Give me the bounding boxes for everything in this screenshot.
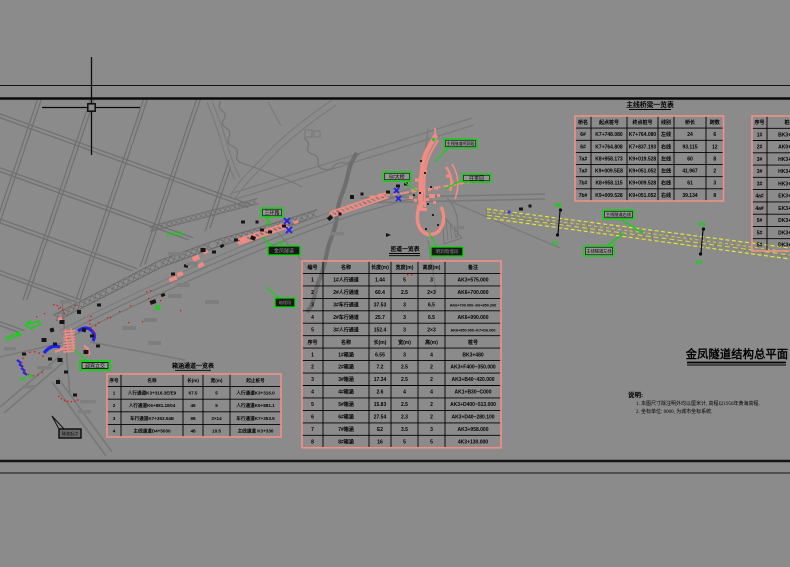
svg-text:说明:: 说明: (628, 390, 643, 399)
svg-text:起点桩号: 起点桩号 (598, 119, 619, 126)
svg-text:7: 7 (311, 427, 314, 433)
svg-text:3: 3 (113, 416, 116, 421)
svg-text:主线通道D4+5000: 主线通道D4+5000 (133, 427, 171, 434)
svg-text:HK3+205.: HK3+205. (778, 181, 790, 187)
svg-text:6#大桥: 6#大桥 (389, 173, 405, 180)
svg-text:K9+051.052: K9+051.052 (629, 193, 657, 199)
svg-text:2#车行通道: 2#车行通道 (333, 314, 359, 321)
svg-text:K9+019.528: K9+019.528 (629, 156, 657, 162)
svg-text:AK6+700.000: AK6+700.000 (458, 290, 489, 296)
svg-text:2.6: 2.6 (377, 390, 384, 396)
svg-text:AK6+990.000: AK6+990.000 (458, 315, 489, 321)
svg-text:5#箱涵: 5#箱涵 (338, 401, 354, 408)
svg-text:3#车行通道: 3#车行通道 (333, 302, 359, 309)
svg-text:名称: 名称 (341, 264, 351, 271)
svg-text:主线桥梁一览表: 主线桥梁一览表 (626, 100, 674, 109)
svg-text:4: 4 (403, 390, 406, 396)
svg-text:4: 4 (430, 390, 433, 396)
svg-text:7a#: 7a# (579, 169, 588, 175)
svg-text:6#箱涵: 6#箱涵 (338, 414, 354, 421)
svg-text:2. 坐标单位: 0000, 为城市坐标系统.: 2. 坐标单位: 0000, 为城市坐标系统. (636, 408, 712, 415)
svg-text:7b#: 7b# (579, 193, 588, 199)
svg-text:6.5: 6.5 (428, 303, 435, 309)
svg-text:2.5: 2.5 (401, 365, 408, 371)
svg-text:DK3+374.: DK3+374. (778, 243, 790, 249)
svg-text:箱涵通道一览表: 箱涵通道一览表 (172, 362, 215, 370)
svg-text:7a#: 7a# (579, 156, 588, 162)
svg-text:匝道一览表: 匝道一览表 (391, 245, 420, 253)
svg-text:3: 3 (713, 181, 716, 187)
svg-text:8#箱涵: 8#箱涵 (338, 438, 354, 445)
svg-text:1#人行通道: 1#人行通道 (333, 277, 359, 284)
svg-text:AK3+D40~280.100: AK3+D40~280.100 (451, 415, 494, 421)
svg-text:8: 8 (713, 156, 716, 162)
svg-text:6: 6 (311, 415, 314, 421)
svg-text:起止桩号: 起止桩号 (245, 377, 265, 384)
svg-text:3: 3 (430, 278, 433, 284)
svg-text:61: 61 (687, 181, 693, 187)
svg-text:左线: 左线 (660, 155, 671, 162)
svg-text:2: 2 (113, 403, 116, 408)
svg-text:车行通道K7+353.5: 车行通道K7+353.5 (236, 415, 275, 422)
svg-text:3: 3 (311, 377, 314, 383)
svg-text:备注: 备注 (467, 264, 478, 271)
svg-text:2: 2 (430, 402, 433, 408)
svg-text:人行通道K3+316.3E/E9: 人行通道K3+316.3E/E9 (127, 390, 177, 397)
svg-text:主线隧道左线: 主线隧道左线 (586, 248, 612, 255)
svg-text:AK6+700.000~K6+850.200: AK6+700.000~K6+850.200 (450, 304, 497, 308)
svg-text:5#: 5# (757, 231, 763, 237)
svg-text:12: 12 (712, 144, 718, 150)
svg-text:5: 5 (311, 402, 314, 408)
svg-text:AK3+B40~420.000: AK3+B40~420.000 (451, 377, 494, 383)
svg-text:K8+958.115: K8+958.115 (595, 181, 622, 187)
svg-text:3: 3 (430, 427, 433, 433)
svg-text:K9+051.052: K9+051.052 (629, 169, 657, 175)
svg-text:AK0+337.: AK0+337. (778, 145, 790, 151)
svg-text:1: 1 (311, 278, 314, 284)
svg-text:人行通道K3+316.0: 人行通道K3+316.0 (235, 390, 275, 397)
svg-text:2×14: 2×14 (211, 416, 222, 421)
svg-text:5: 5 (430, 439, 433, 445)
svg-text:93.115: 93.115 (682, 144, 697, 150)
svg-text:右线: 右线 (660, 192, 671, 199)
svg-text:K7+748.080: K7+748.080 (595, 132, 623, 138)
svg-text:60.4: 60.4 (375, 290, 385, 296)
svg-text:宽(m): 宽(m) (211, 377, 223, 384)
svg-text:3#: 3# (757, 157, 763, 163)
svg-text:左线: 左线 (660, 168, 671, 175)
svg-text:6#: 6# (580, 132, 586, 138)
svg-text:2.5: 2.5 (401, 377, 408, 383)
svg-text:1#箱涵: 1#箱涵 (338, 351, 354, 358)
svg-text:5#: 5# (757, 218, 763, 224)
svg-text:人行通道K6+881.1E04: 人行通道K6+881.1E04 (128, 402, 176, 409)
svg-text:HK3+156.: HK3+156. (778, 157, 790, 163)
svg-text:2#: 2# (757, 145, 763, 151)
svg-text:长(m): 长(m) (374, 339, 387, 346)
svg-text:24: 24 (687, 132, 693, 138)
svg-text:2.5: 2.5 (401, 290, 408, 296)
svg-text:5#: 5# (757, 243, 763, 249)
svg-text:K9+009.528: K9+009.528 (629, 181, 657, 187)
svg-text:3: 3 (403, 315, 406, 321)
svg-text:主线通道 K3+330: 主线通道 K3+330 (238, 427, 274, 434)
svg-text:K8+958.173: K8+958.173 (595, 156, 623, 162)
svg-text:3.5: 3.5 (401, 427, 408, 433)
svg-text:4a#: 4a# (755, 194, 764, 200)
svg-text:3: 3 (403, 327, 406, 333)
svg-text:5: 5 (403, 439, 406, 445)
svg-text:往茶园: 往茶园 (469, 175, 484, 182)
svg-text:17.34: 17.34 (374, 377, 387, 383)
svg-text:主线隧道明洞段: 主线隧道明洞段 (447, 140, 475, 146)
svg-text:高(m): 高(m) (425, 339, 438, 346)
svg-text:序号: 序号 (306, 339, 317, 346)
svg-text:K7+764.808: K7+764.808 (595, 144, 623, 150)
svg-text:1: 1 (113, 391, 116, 396)
svg-text:8: 8 (713, 193, 716, 199)
svg-text:桥长: 桥长 (685, 119, 696, 126)
svg-text:2.5: 2.5 (401, 402, 408, 408)
svg-text:2: 2 (311, 290, 314, 296)
svg-text:3#: 3# (757, 169, 763, 175)
svg-text:EK3+210.: EK3+210. (778, 194, 790, 200)
svg-text:长(m): 长(m) (187, 377, 199, 384)
svg-text:序号: 序号 (109, 377, 119, 384)
svg-text:60: 60 (687, 156, 693, 162)
svg-text:4: 4 (311, 315, 314, 321)
svg-text:K1: K1 (552, 241, 559, 247)
svg-text:98: 98 (190, 416, 196, 421)
svg-text:6: 6 (713, 132, 716, 138)
svg-text:名称: 名称 (341, 339, 351, 346)
svg-text:AK3+575.000: AK3+575.000 (458, 278, 489, 284)
svg-text:2.3: 2.3 (401, 415, 408, 421)
svg-text:4K3+130.000: 4K3+130.000 (458, 439, 488, 445)
svg-text:左线: 左线 (660, 131, 671, 138)
svg-text:3: 3 (311, 303, 314, 309)
svg-text:1#: 1# (757, 132, 763, 138)
svg-text:桩号: 桩号 (784, 119, 790, 126)
svg-text:暗埋段: 暗埋段 (279, 299, 292, 306)
svg-text:37.53: 37.53 (374, 303, 387, 309)
svg-text:5: 5 (215, 403, 218, 408)
svg-text:K7+764.080: K7+764.080 (629, 132, 657, 138)
svg-text:编号: 编号 (307, 264, 317, 271)
svg-text:高度(m): 高度(m) (423, 264, 441, 271)
svg-text:7.2: 7.2 (377, 365, 384, 371)
svg-text:2: 2 (311, 365, 314, 371)
svg-text:AK6+850.000~K7+D6.000: AK6+850.000~K7+D6.000 (450, 328, 495, 332)
svg-text:7#箱涵: 7#箱涵 (338, 426, 354, 433)
svg-text:金凤隧道结构总平面: 金凤隧道结构总平面 (685, 347, 789, 361)
svg-text:BK3+725.: BK3+725. (778, 132, 790, 138)
svg-text:序号: 序号 (753, 119, 764, 126)
svg-text:长度(m): 长度(m) (371, 264, 389, 271)
svg-text:AK3+958.000: AK3+958.000 (458, 427, 489, 433)
svg-text:人行通道K6+881.1: 人行通道K6+881.1 (235, 402, 275, 409)
svg-text:桩号: 桩号 (468, 339, 478, 346)
svg-text:3#: 3# (757, 181, 763, 187)
svg-text:16: 16 (377, 439, 383, 445)
svg-text:2: 2 (430, 365, 433, 371)
svg-text:终点桩号: 终点桩号 (631, 119, 652, 126)
svg-text:4: 4 (430, 352, 433, 358)
svg-text:4: 4 (311, 390, 314, 396)
svg-text:车行通道K7+353.54E: 车行通道K7+353.54E (130, 415, 174, 422)
svg-text:3#箱涵: 3#箱涵 (338, 376, 354, 383)
svg-text:HK3+190.: HK3+190. (778, 169, 790, 175)
svg-text:39.134: 39.134 (682, 193, 698, 199)
svg-text:EK3+160.: EK3+160. (778, 206, 790, 212)
svg-text:1.44: 1.44 (375, 278, 385, 284)
svg-text:E2: E2 (377, 427, 383, 433)
svg-text:2×3: 2×3 (427, 327, 436, 333)
svg-text:金凤隧道: 金凤隧道 (274, 247, 294, 254)
svg-text:宽(m): 宽(m) (397, 339, 411, 346)
svg-text:67.5: 67.5 (189, 391, 198, 396)
svg-text:2: 2 (430, 415, 433, 421)
svg-text:41.967: 41.967 (682, 169, 698, 175)
svg-text:右线: 右线 (660, 180, 671, 187)
svg-text:152.4: 152.4 (374, 327, 387, 333)
svg-text:AK1+B30~C000: AK1+B30~C000 (455, 390, 492, 396)
svg-text:主线隧道右线: 主线隧道右线 (606, 211, 632, 218)
svg-text:K9+009.528: K9+009.528 (595, 193, 623, 199)
svg-text:2#箱涵: 2#箱涵 (338, 364, 354, 371)
svg-text:46: 46 (190, 403, 196, 408)
svg-text:8: 8 (311, 439, 314, 445)
svg-text:25.7: 25.7 (375, 315, 385, 321)
svg-text:BK3+480: BK3+480 (462, 352, 483, 358)
svg-text:M8: M8 (555, 203, 562, 209)
svg-text:2: 2 (430, 377, 433, 383)
svg-text:M9: M9 (699, 222, 706, 228)
svg-text:K7+837.193: K7+837.193 (629, 144, 657, 150)
svg-text:7b#: 7b# (579, 181, 588, 187)
svg-text:2#人行通道: 2#人行通道 (333, 289, 359, 296)
svg-text:DK3+303.: DK3+303. (778, 218, 790, 224)
svg-text:3: 3 (403, 303, 406, 309)
svg-text:6.55: 6.55 (375, 352, 385, 358)
svg-text:3: 3 (403, 352, 406, 358)
svg-text:2: 2 (713, 169, 716, 175)
svg-text:线别: 线别 (661, 119, 671, 126)
svg-text:DK3+329.: DK3+329. (778, 231, 790, 237)
svg-text:K2: K2 (278, 240, 284, 245)
svg-text:隧道起点: 隧道起点 (62, 430, 79, 437)
svg-text:右线: 右线 (660, 143, 671, 150)
svg-text:5: 5 (311, 327, 314, 333)
svg-text:5: 5 (215, 391, 218, 396)
svg-text:2×3: 2×3 (427, 290, 436, 296)
svg-text:K9+009.5E8: K9+009.5E8 (595, 169, 623, 175)
svg-text:5: 5 (403, 278, 406, 284)
svg-text:4#箱涵: 4#箱涵 (338, 389, 354, 396)
svg-text:1: 1 (311, 352, 314, 358)
svg-text:AK3+F400~350.000: AK3+F400~350.000 (450, 365, 496, 371)
svg-text:3#人行通道: 3#人行通道 (333, 326, 359, 333)
svg-text:4: 4 (113, 428, 116, 433)
svg-text:迎宾立交: 迎宾立交 (85, 362, 105, 369)
svg-text:AK3+D400~513.000: AK3+D400~513.000 (450, 402, 496, 408)
svg-text:6.5: 6.5 (428, 315, 435, 321)
svg-text:跨数: 跨数 (710, 119, 721, 126)
svg-text:1. 本图尺寸除注明外均以厘米计, 高程以1956年黄海高程: 1. 本图尺寸除注明外均以厘米计, 高程以1956年黄海高程. (636, 400, 760, 407)
svg-text:名称: 名称 (147, 377, 157, 384)
svg-text:桥名: 桥名 (578, 119, 588, 126)
svg-text:15.83: 15.83 (374, 402, 387, 408)
svg-text:三环路: 三环路 (264, 209, 279, 216)
svg-text:4a#: 4a# (755, 206, 764, 212)
svg-text:27.54: 27.54 (374, 415, 387, 421)
svg-text:10.5: 10.5 (212, 428, 221, 433)
svg-text:明洞暗埋段: 明洞暗埋段 (436, 248, 459, 255)
svg-text:6#: 6# (580, 144, 586, 150)
svg-text:K0: K0 (696, 260, 703, 266)
svg-text:宽度(m): 宽度(m) (395, 264, 414, 271)
svg-text:48: 48 (190, 428, 196, 433)
